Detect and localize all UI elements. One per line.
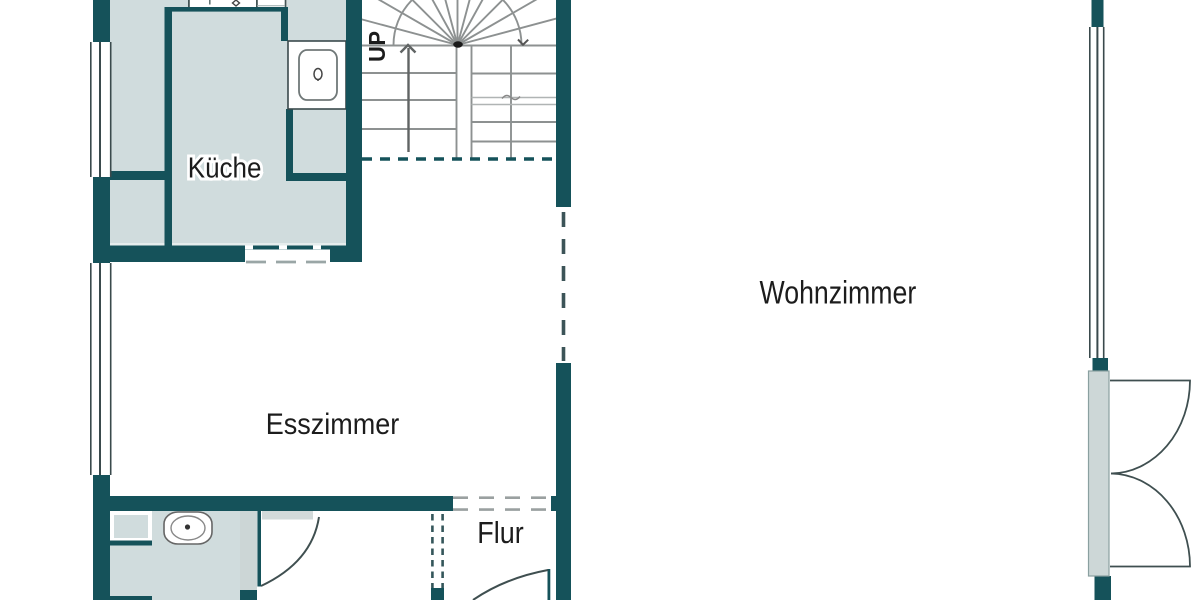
svg-text:UP: UP <box>365 30 391 62</box>
svg-text:Wohnzimmer: Wohnzimmer <box>760 275 917 311</box>
svg-text:Esszimmer: Esszimmer <box>266 408 399 440</box>
svg-text:Flur: Flur <box>477 517 524 551</box>
svg-text:Küche: Küche <box>188 152 262 184</box>
